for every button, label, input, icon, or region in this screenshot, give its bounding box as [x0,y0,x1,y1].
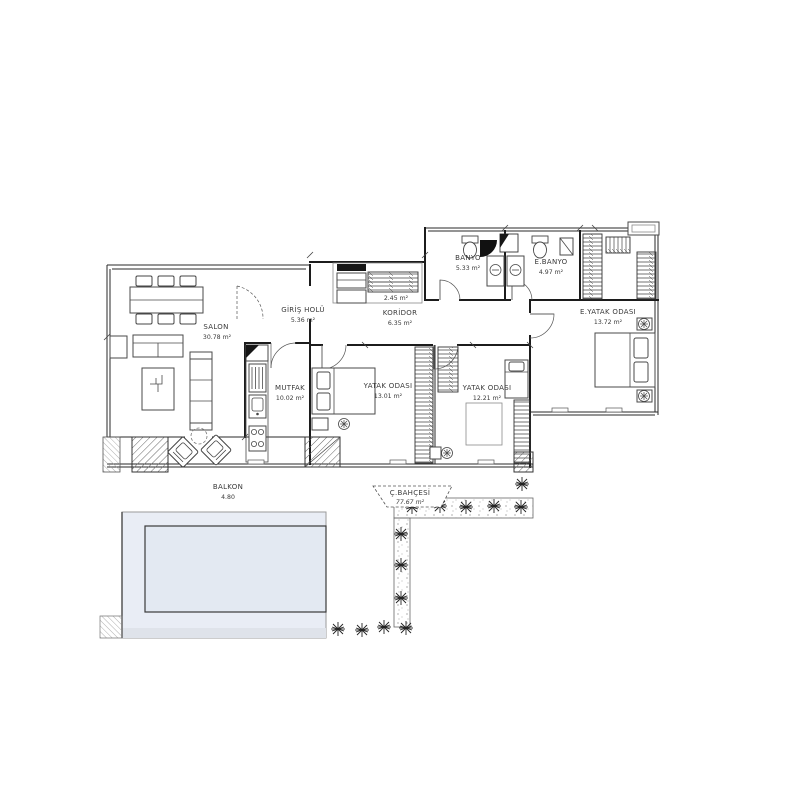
balkon-label: BALKON [213,483,243,491]
mutfak-fixtures [246,345,268,462]
exterior-walls [107,228,658,467]
yatak-1-label: YATAK ODASI [363,382,413,390]
yatak-1-area: 13.01 m² [374,393,403,400]
e-yatak-furniture [595,318,655,402]
entry-closets [333,263,422,303]
garden-area: 77.67 m² [396,499,425,506]
yatak-2-label: YATAK ODASI [462,384,512,392]
e-yatak-label: E.YATAK ODASI [580,308,636,316]
salon-label: SALON [203,323,228,331]
garden-label: Ç.BAHÇESİ [390,488,431,497]
mutfak-area: 10.02 m² [276,395,305,402]
balcony [103,408,622,472]
yatak-2-area: 12.21 m² [473,395,502,402]
koridor-label: KORİDOR [383,308,418,317]
balkon-area: 4.80 [221,494,235,501]
e-banyo-area: 4.97 m² [539,269,564,276]
dressing-wardrobes [583,222,659,299]
koridor-area: 6.35 m² [388,320,413,327]
banyo-label: BANYO [455,254,481,262]
mutfak-label: MUTFAK [275,384,305,392]
vestiyer-area: 2.45 m² [384,295,409,302]
giris-holu-label: GİRİŞ HOLÜ [281,305,325,314]
e-yatak-area: 13.72 m² [594,319,623,326]
salon-area: 30.78 m² [203,334,232,341]
floor-plan-drawing: SALON 30.78 m² GİRİŞ HOLÜ 5.36 m² KORİDO… [0,0,800,800]
salon-furniture [110,276,212,430]
roof-garden [331,477,533,637]
pool [100,512,326,638]
e-banyo-label: E.BANYO [535,258,568,266]
banyo-area: 5.33 m² [456,265,481,272]
floor-plan-page: SALON 30.78 m² GİRİŞ HOLÜ 5.36 m² KORİDO… [0,0,800,800]
giris-holu-area: 5.36 m² [291,317,316,324]
